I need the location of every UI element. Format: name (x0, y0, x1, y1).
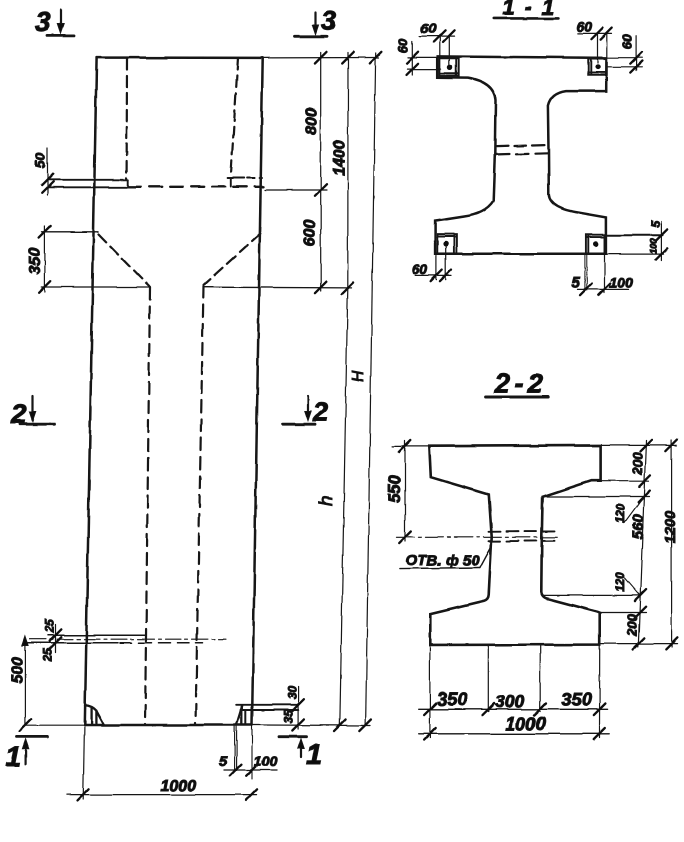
svg-text:25: 25 (41, 648, 55, 663)
svg-text:600: 600 (302, 220, 319, 247)
svg-text:350: 350 (562, 690, 592, 710)
svg-text:H: H (350, 370, 367, 382)
svg-text:100: 100 (649, 239, 659, 254)
svg-text:350: 350 (437, 690, 467, 710)
svg-text:1200: 1200 (663, 511, 679, 543)
svg-text:500: 500 (10, 657, 27, 684)
svg-text:1000: 1000 (161, 778, 197, 795)
svg-text:25: 25 (43, 619, 57, 634)
svg-text:560: 560 (630, 514, 647, 540)
svg-text:300: 300 (495, 692, 524, 712)
svg-text:1-1: 1-1 (503, 0, 565, 20)
svg-text:30: 30 (286, 686, 300, 700)
svg-text:5: 5 (649, 221, 663, 228)
svg-text:1400: 1400 (332, 140, 349, 176)
svg-text:60: 60 (620, 34, 635, 49)
svg-text:2-2: 2-2 (494, 369, 548, 399)
svg-text:120: 120 (615, 504, 627, 524)
svg-text:5: 5 (219, 753, 228, 770)
svg-text:3: 3 (321, 5, 337, 36)
svg-text:60: 60 (421, 20, 437, 36)
svg-text:2: 2 (312, 397, 328, 427)
svg-text:1000: 1000 (506, 714, 546, 734)
svg-text:ОТВ. ф 50: ОТВ. ф 50 (406, 552, 481, 569)
svg-text:1: 1 (5, 741, 21, 773)
svg-text:60: 60 (577, 19, 593, 35)
svg-text:50: 50 (32, 153, 48, 169)
svg-text:100: 100 (254, 753, 278, 769)
svg-text:1: 1 (306, 739, 322, 771)
svg-text:35: 35 (284, 710, 296, 723)
svg-text:800: 800 (304, 108, 321, 135)
svg-text:350: 350 (27, 248, 44, 275)
svg-text:60: 60 (396, 38, 411, 53)
svg-text:60: 60 (412, 261, 428, 277)
svg-text:120: 120 (615, 572, 627, 592)
svg-text:100: 100 (610, 275, 634, 291)
svg-text:5: 5 (572, 275, 581, 292)
svg-text:550: 550 (386, 474, 404, 502)
svg-text:200: 200 (630, 452, 645, 475)
svg-text:3: 3 (35, 6, 51, 37)
svg-text:200: 200 (625, 613, 640, 636)
svg-text:h: h (317, 496, 337, 506)
